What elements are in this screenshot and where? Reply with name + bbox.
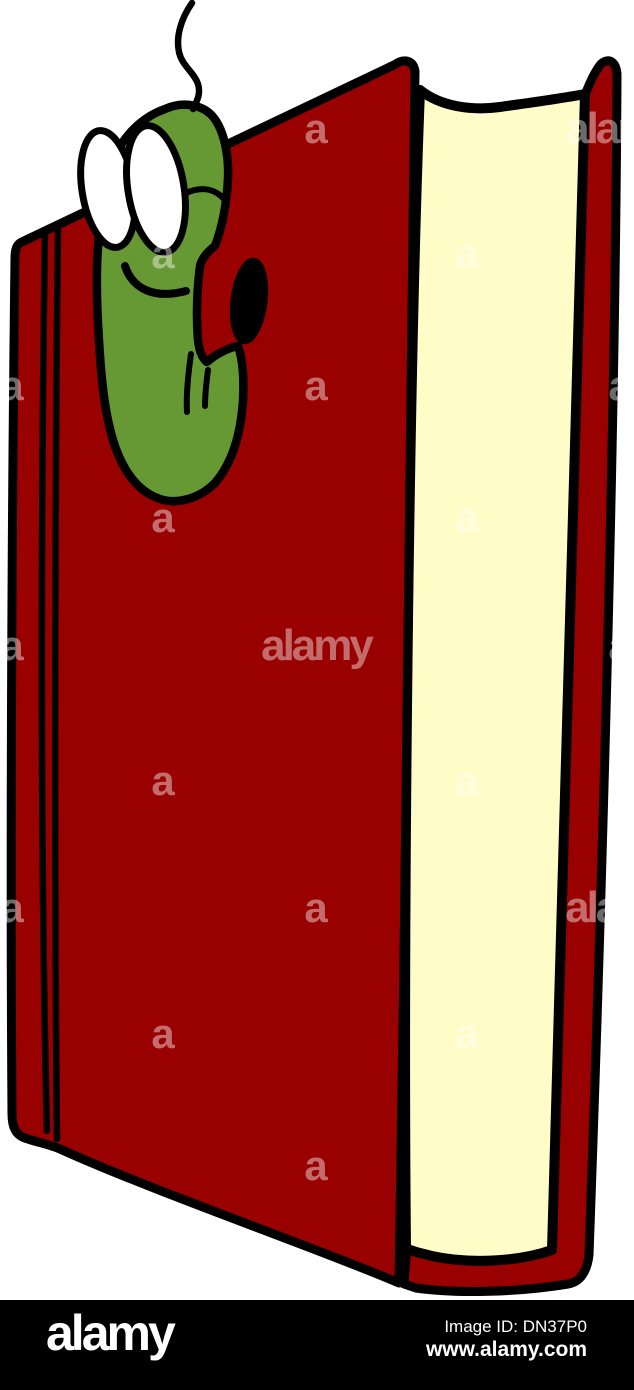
worm-antenna (178, 3, 199, 109)
watermark-alamy-word: alamy (261, 621, 374, 670)
watermark-a-letter: a (304, 105, 328, 152)
watermark-a-letter: a (304, 1142, 328, 1189)
watermark-a-letter: a (455, 757, 479, 804)
watermark-a-letter: a (0, 884, 24, 931)
bookworm-illustration: aaalamyaaaaaaaaalamyaaaaaalamyaaaaa (0, 0, 634, 1302)
website-text: www.alamy.com (426, 1337, 587, 1363)
image-id-text: Image ID: DN37P0 (426, 1316, 587, 1337)
watermark-a-letter: a (455, 1010, 479, 1057)
worm-crease-short (205, 370, 208, 406)
watermark-a-letter: a (455, 230, 479, 277)
watermark-a-letter: a (0, 622, 24, 669)
watermark-a-letter: a (151, 494, 175, 541)
footer-bar: alamy Image ID: DN37P0 www.alamy.com (0, 1300, 634, 1390)
watermark-a-letter: a (304, 362, 328, 409)
watermark-a-letter: a (151, 1010, 175, 1057)
alamy-logo: alamy (46, 1308, 173, 1358)
watermark-a-letter: a (0, 1142, 24, 1189)
spine-fold-line-right (55, 225, 58, 1139)
watermark-a-letter: a (608, 362, 632, 409)
watermark-a-letter: a (151, 757, 175, 804)
watermark-a-letter: a (608, 622, 632, 669)
watermark-alamy-word: alamy (565, 104, 634, 153)
watermark-a-letter: a (0, 105, 24, 152)
book-pages (405, 90, 585, 1261)
watermark-a-letter: a (151, 230, 175, 277)
watermark-a-letter: a (455, 494, 479, 541)
watermark-a-letter: a (608, 1142, 632, 1189)
watermark-a-letter: a (0, 362, 24, 409)
watermark-a-letter: a (304, 884, 328, 931)
watermark-alamy-word: alamy (565, 883, 634, 932)
footer-info: Image ID: DN37P0 www.alamy.com (426, 1316, 587, 1364)
